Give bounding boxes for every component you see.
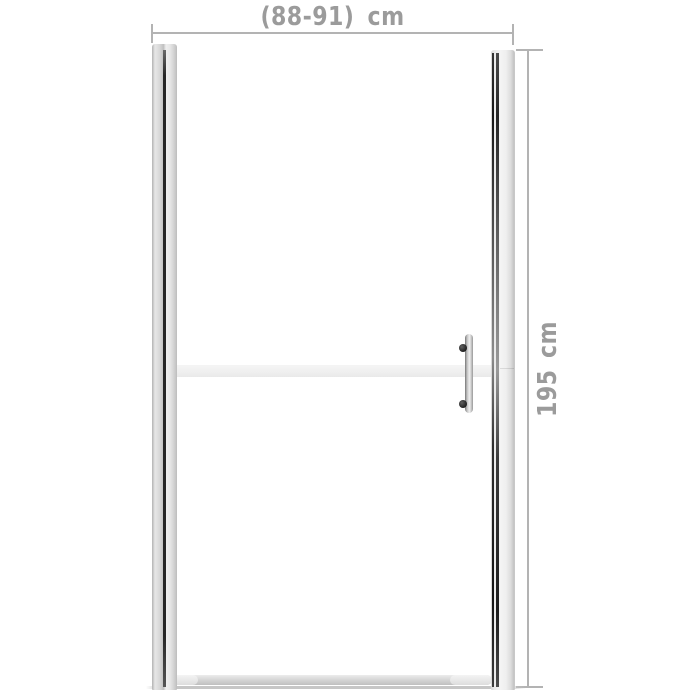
- height-dimension-tick-top: [516, 49, 543, 51]
- handle-mount-bottom: [459, 400, 467, 408]
- bottom-threshold-rail: [156, 675, 492, 685]
- threshold-end-cap-right: [450, 675, 492, 685]
- right-profile-groove-outer: [492, 53, 494, 687]
- width-dimension-line: [152, 32, 513, 34]
- right-profile-seam: [500, 368, 514, 369]
- frosted-glass-band: [177, 365, 491, 377]
- right-wall-profile: [491, 50, 515, 690]
- shower-door-dimension-diagram: (88-91) cm 195 cm: [0, 0, 700, 700]
- right-profile-groove-inner: [496, 53, 499, 687]
- width-dimension-tick-right: [512, 24, 514, 45]
- width-dimension-tick-left: [151, 24, 153, 43]
- left-profile-groove: [163, 50, 166, 687]
- glass-panel: [177, 50, 491, 675]
- width-dimension-label: (88-91) cm: [179, 2, 486, 32]
- handle-mount-top: [459, 344, 467, 352]
- height-dimension-line: [527, 50, 529, 688]
- height-dimension-label: 195 cm: [532, 314, 564, 425]
- left-wall-profile: [152, 44, 177, 690]
- floor-line: [146, 686, 526, 689]
